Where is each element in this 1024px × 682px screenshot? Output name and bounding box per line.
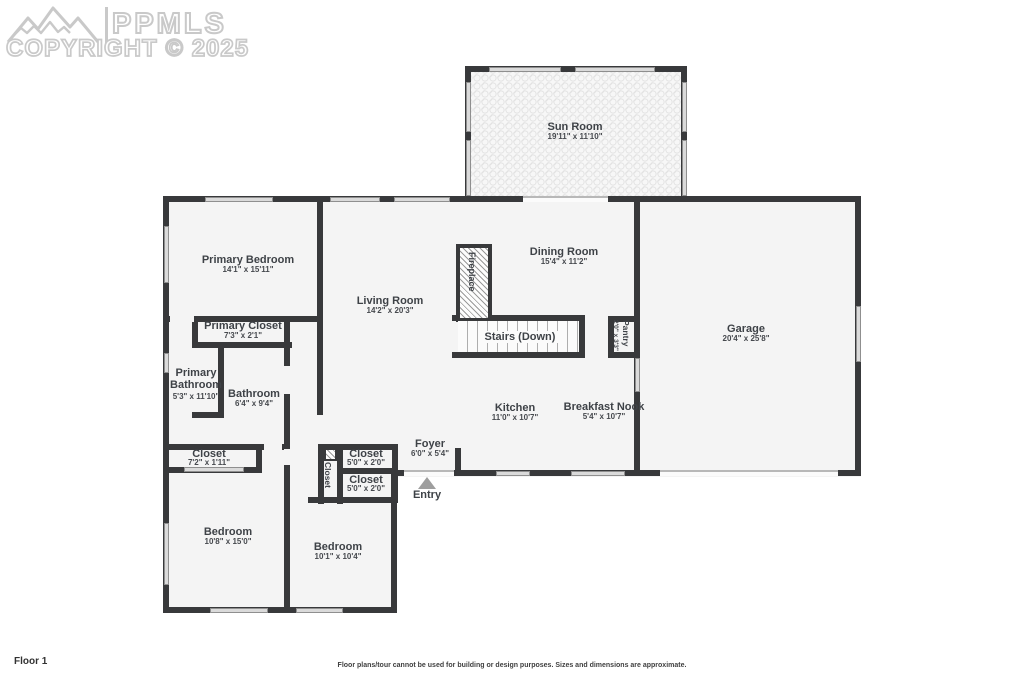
room-dims-bedroom-2: 10'1" x 10'4" [315, 553, 362, 562]
wall [337, 444, 343, 504]
room-dims-garage: 20'4" x 25'8" [723, 335, 770, 344]
room-dims-primary-bathroom: 5'3" x 11'10" [173, 393, 220, 402]
window [296, 608, 343, 613]
window [466, 82, 471, 132]
window [164, 523, 169, 585]
room-dims-foyer: 6'0" x 5'4" [411, 450, 449, 459]
room-dims-living-room: 14'2" x 20'3" [367, 307, 414, 316]
room-label-primary-bathroom: Primary Bathroom [161, 367, 231, 391]
window [856, 306, 861, 362]
door-gap [170, 316, 194, 322]
entry-door-opening [404, 470, 454, 476]
window [466, 140, 471, 196]
watermark: PPMLS COPYRIGHT © 2025 [6, 2, 106, 53]
room-dims-closet-upper: 5'0" x 2'0" [347, 459, 385, 468]
wall [192, 342, 292, 348]
wall [634, 196, 640, 322]
door-gap [264, 444, 282, 450]
wall [452, 352, 585, 358]
wall [455, 448, 461, 476]
window [164, 226, 169, 283]
wall [579, 315, 585, 358]
wall [308, 497, 398, 503]
wall [192, 412, 224, 418]
stairs-label: Stairs (Down) [480, 331, 561, 343]
sun-room-opening [523, 196, 608, 202]
room-dims-kitchen: 11'0" x 10'7" [492, 414, 539, 423]
wall [284, 444, 290, 613]
closet-hatch [324, 448, 337, 461]
disclaimer-text: Floor plans/tour cannot be used for buil… [0, 662, 1024, 669]
wall [634, 316, 640, 476]
room-dims-dining-room: 15'4" x 11'2" [541, 258, 588, 267]
room-dims-sun-room: 19'11" x 11'10" [548, 133, 603, 142]
room-dims-breakfast-nook: 5'4" x 10'7" [583, 413, 626, 422]
floor-plan-page: PPMLS COPYRIGHT © 2025 [0, 0, 1024, 682]
room-dims-primary-bedroom: 14'1" x 15'11" [223, 266, 274, 275]
door-gap [284, 449, 290, 465]
window [575, 67, 655, 72]
window [330, 197, 380, 202]
room-dims-bedroom-1: 10'8" x 15'0" [205, 538, 252, 547]
room-dims-hall-closet: 7'2" x 1'11" [188, 459, 230, 468]
pantry-label: Pantry [621, 320, 631, 356]
door-gap [284, 366, 290, 394]
closet-vertical-label: Closet [323, 462, 333, 504]
window [394, 197, 450, 202]
entry-label: Entry [413, 489, 441, 501]
wall [317, 196, 323, 415]
fireplace-label: Fireplace [467, 252, 477, 314]
room-dims-primary-closet: 7'3" x 2'1" [224, 332, 262, 341]
window [496, 471, 530, 476]
window [682, 82, 687, 132]
watermark-copyright: COPYRIGHT © 2025 [6, 35, 249, 63]
room-dims-bathroom: 6'4" x 9'4" [235, 400, 273, 409]
pantry-dims: 2'0" x 3'3" [612, 320, 619, 356]
wall [163, 607, 397, 613]
window [635, 358, 640, 392]
garage-door-opening [660, 470, 838, 476]
window [210, 608, 268, 613]
entry-arrow-icon [418, 477, 436, 489]
wall [392, 444, 398, 503]
window [571, 471, 625, 476]
window [682, 140, 687, 196]
window [489, 67, 561, 72]
window [205, 197, 273, 202]
room-dims-closet-lower: 5'0" x 2'0" [347, 485, 385, 494]
